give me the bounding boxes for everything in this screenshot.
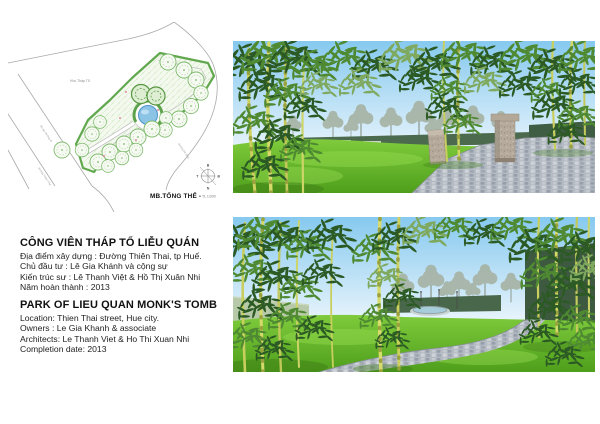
site-plan: Khu Tháp Tổ lối vào đường đi đường Thiên… xyxy=(8,22,220,212)
info-vi-owner: Chủ đầu tư : Lê Gia Khánh và cộng sự xyxy=(20,261,235,271)
compass-west-label: T xyxy=(196,174,199,178)
road-label-lower-left: đường Thiên Thai xyxy=(37,166,53,186)
info-en-location: Location: Thien Thai street, Hue city. xyxy=(20,313,235,323)
compass-rose: B Đ N T xyxy=(196,164,220,191)
render-top-perspective xyxy=(233,41,595,193)
info-en-architects: Architects: Le Thanh Viet & Ho Thi Xuan … xyxy=(20,334,235,344)
compass-north-label: B xyxy=(207,164,210,168)
plan-caption: MB.TỔNG THỂ - xyxy=(150,191,201,200)
compass-south-label: N xyxy=(207,187,210,191)
plan-caption-scale: TL 1/200 xyxy=(202,195,216,199)
plan-park xyxy=(54,53,214,172)
stone-pillar xyxy=(491,114,519,162)
plan-area-label: Khu Tháp Tổ xyxy=(70,79,90,83)
project-info-vietnamese: CÔNG VIÊN THÁP TỔ LIỄU QUÁN Địa điểm xây… xyxy=(20,237,235,293)
project-title-en: PARK OF LIEU QUAN MONK'S TOMB xyxy=(20,299,235,311)
info-vi-location: Địa điểm xây dựng : Đường Thiên Thai, tp… xyxy=(20,251,235,261)
info-en-completion: Completion date: 2013 xyxy=(20,344,235,354)
presentation-board: Khu Tháp Tổ lối vào đường đi đường Thiên… xyxy=(0,0,600,424)
info-vi-year: Năm hoàn thành : 2013 xyxy=(20,282,235,292)
road-label-right: đường bê tông xyxy=(177,142,191,159)
render-bottom-perspective xyxy=(233,217,595,372)
info-vi-architects: Kiến trúc sư : Lê Thanh Việt & Hồ Thị Xu… xyxy=(20,272,235,282)
project-title-vi: CÔNG VIÊN THÁP TỔ LIỄU QUÁN xyxy=(20,237,235,249)
compass-east-label: Đ xyxy=(218,174,221,178)
info-en-owners: Owners : Le Gia Khanh & associate xyxy=(20,323,235,333)
road-label-upper-left: lối vào đường đi xyxy=(39,124,53,143)
project-info-english: PARK OF LIEU QUAN MONK'S TOMB Location: … xyxy=(20,299,235,355)
stone-stele xyxy=(428,129,446,164)
